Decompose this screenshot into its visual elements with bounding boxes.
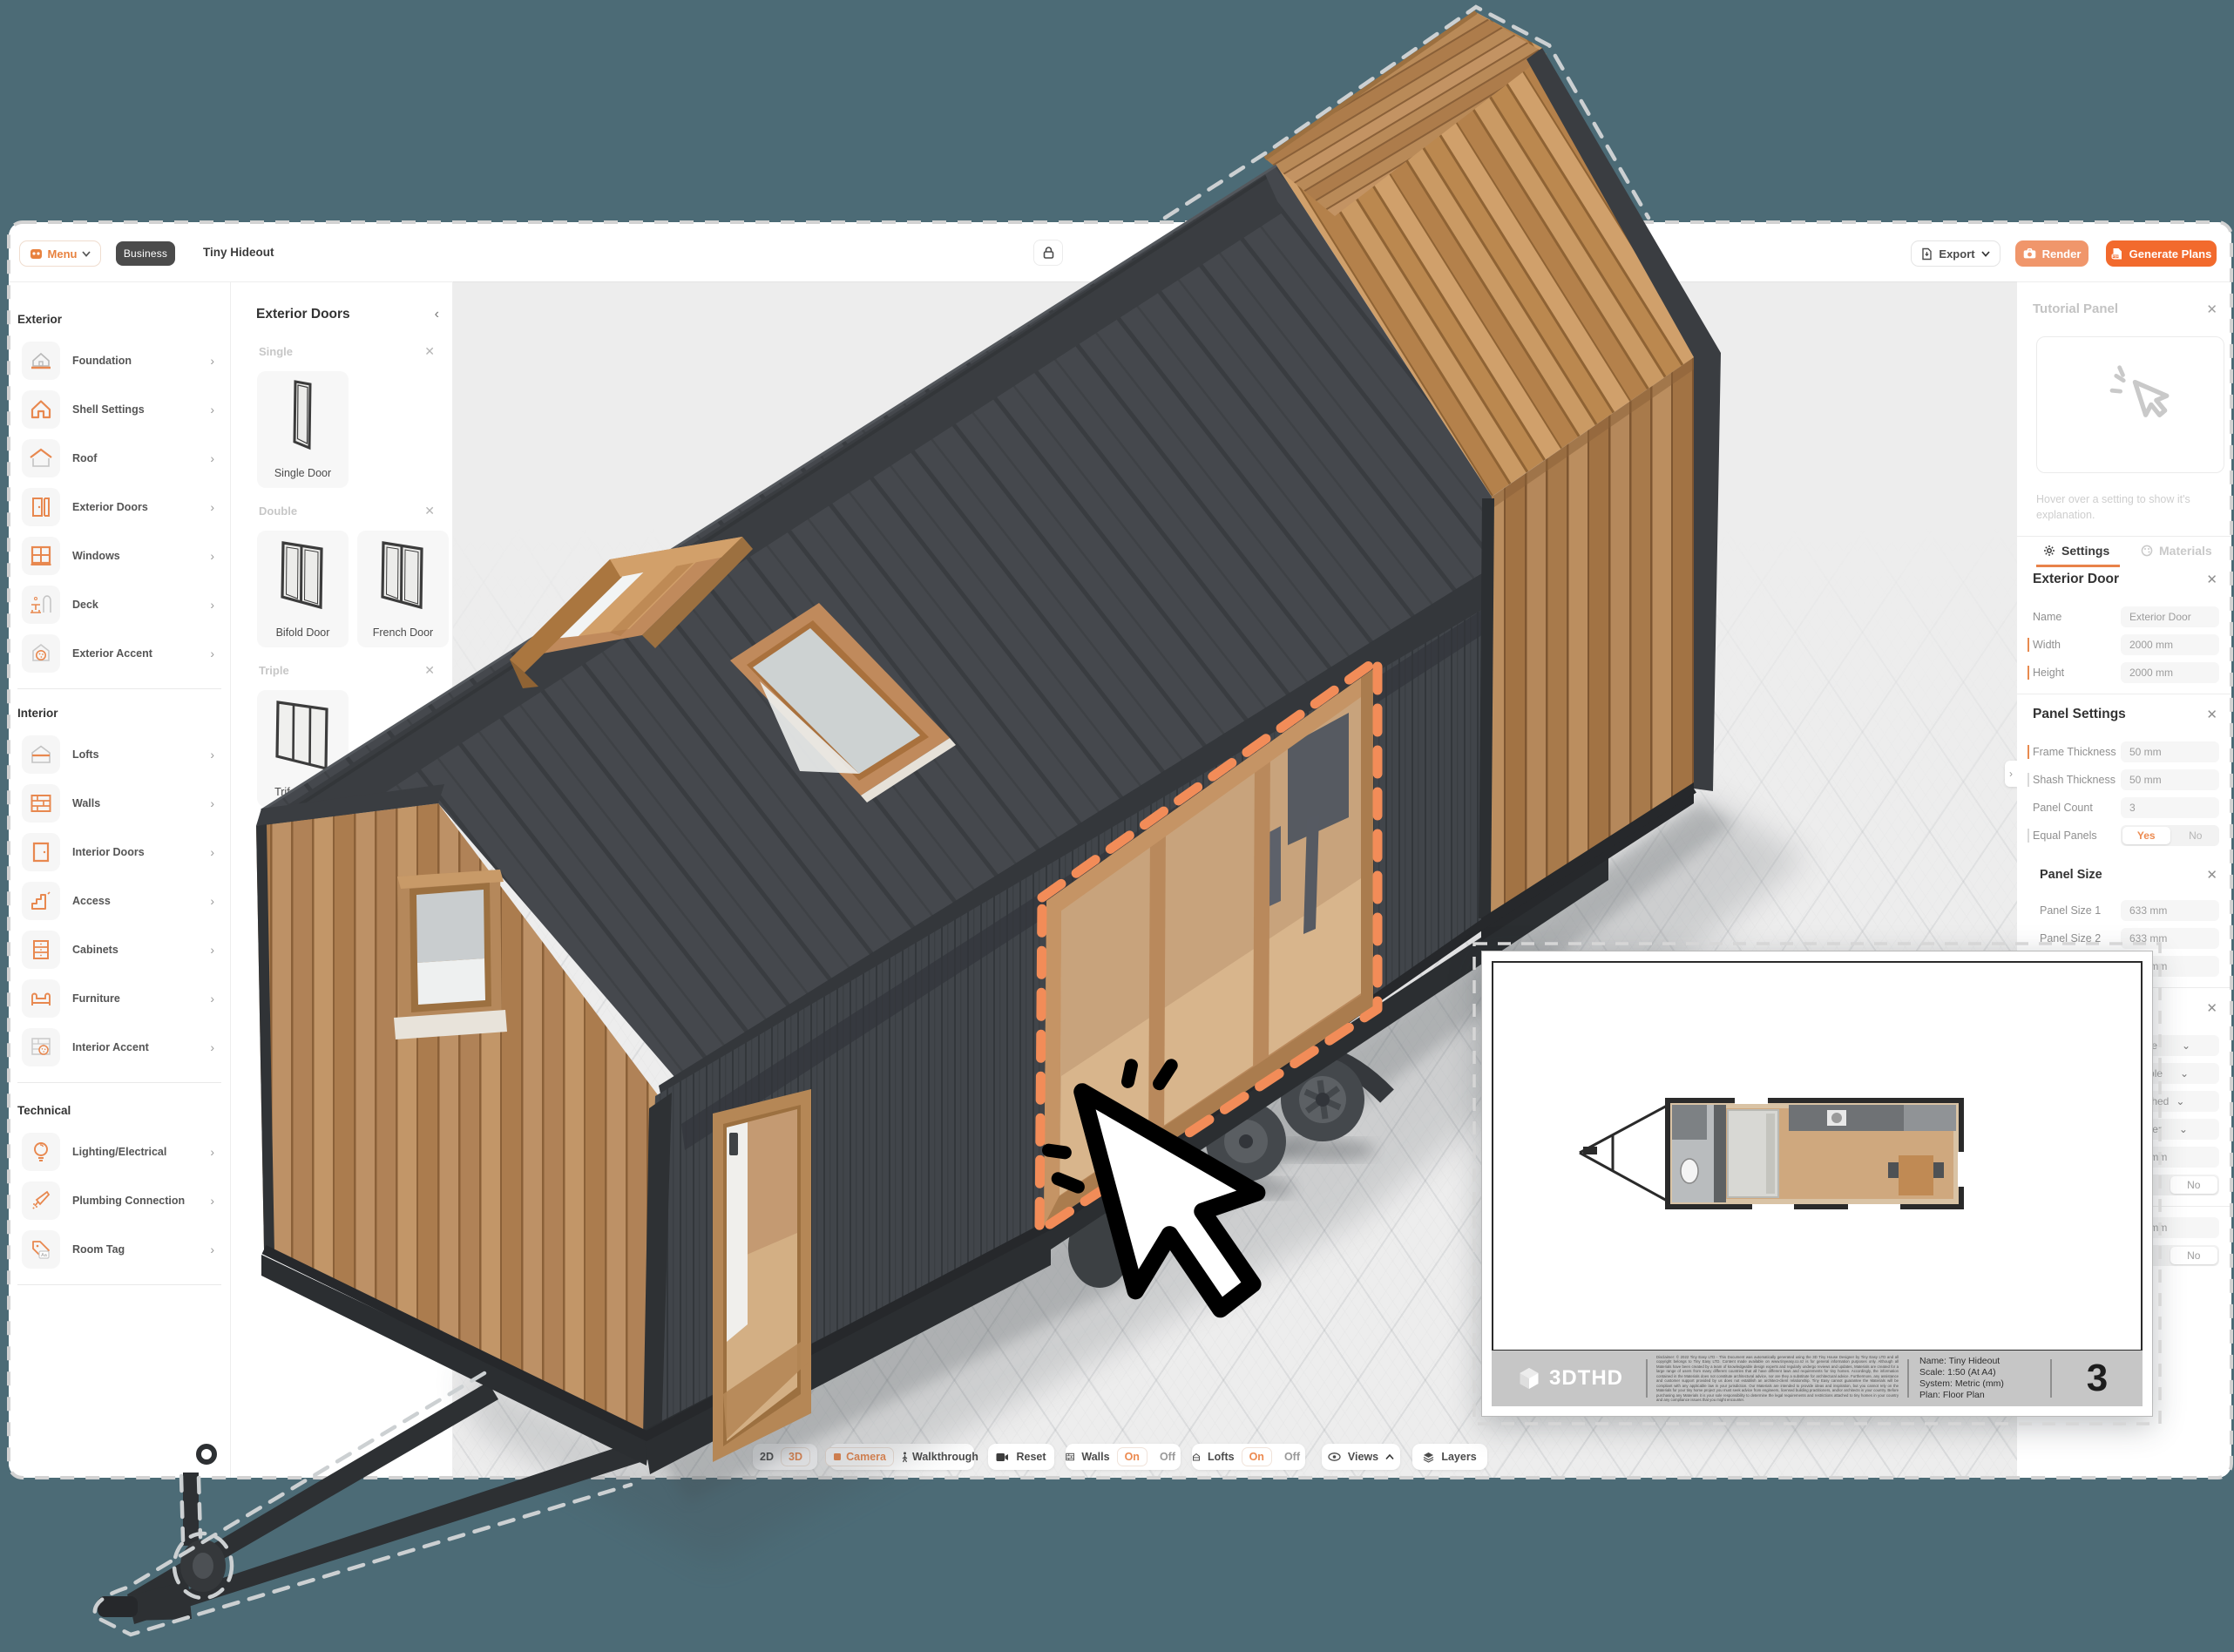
svg-text:PDF: PDF [2112, 254, 2119, 258]
svg-text:Aa: Aa [41, 1253, 48, 1258]
